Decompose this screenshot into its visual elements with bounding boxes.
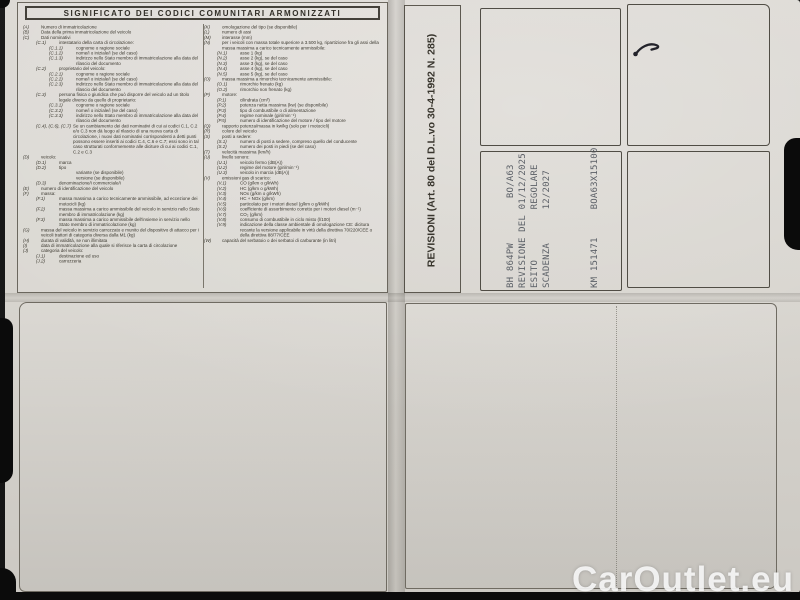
blank-page-left <box>19 302 387 592</box>
legend-entry-code: (C.4), (C.6), (C.7) <box>36 123 73 128</box>
legend-entry-code: (J.2) <box>36 259 59 264</box>
legend-entry-code: (C.3.3) <box>49 113 76 118</box>
legend-entry-text: carrozzeria <box>59 259 201 264</box>
legend-left-column: (A) Numero di immatricolazione (B) Data … <box>22 24 203 289</box>
legend-entry-text: Se un cambiamento dei dati nominativi di… <box>73 123 201 154</box>
legend-entry-code: (C.2.3) <box>49 82 76 87</box>
revision-stamp: BH 864PW BO/A63 REVISIONE DEL 01/12/2025… <box>505 156 601 288</box>
legend-entry-text: per i veicoli con massa totale superiore… <box>222 40 382 50</box>
legend-entry: (W) capacità del serbatoio o dei serbato… <box>204 238 382 243</box>
legend-entry-code: (V.9) <box>217 222 240 227</box>
legend-entry-code: (F.1) <box>36 196 59 201</box>
background-edge-right <box>784 138 800 250</box>
legend-title: SIGNIFICATO DEI CODICI COMUNITARI ARMONI… <box>25 6 380 20</box>
codes-legend-panel: SIGNIFICATO DEI CODICI COMUNITARI ARMONI… <box>17 2 388 293</box>
legend-entry-code: (W) <box>204 238 222 243</box>
legend-right-column: (K) omologazione del tipo (se disponibil… <box>203 24 384 289</box>
legend-entry-text: indirizzo nello Stato membro di immatric… <box>76 56 201 66</box>
legend-entry-text: capacità del serbatoio o dei serbatoi di… <box>222 238 382 243</box>
document-photo: SIGNIFICATO DEI CODICI COMUNITARI ARMONI… <box>0 0 800 600</box>
horizontal-fold-shadow <box>5 293 800 302</box>
legend-entry-code: (F.3) <box>36 217 59 222</box>
pen-mark-icon <box>632 37 666 61</box>
legend-entry-text: indirizzo nello Stato membro di immatric… <box>76 113 201 123</box>
legend-entry-code: (C.3) <box>36 92 59 97</box>
legend-entry-text: massa massima a carico ammissibile dell'… <box>59 217 201 227</box>
legend-entry-text: indicazione della classe ambientale di o… <box>240 222 382 238</box>
legend-entry-code: (D.2) <box>36 165 59 170</box>
legend-entry: (F.2) massa massima a carico ammissibile… <box>23 207 201 217</box>
legend-entry-code: (N) <box>204 40 222 45</box>
document-sheet: SIGNIFICATO DEI CODICI COMUNITARI ARMONI… <box>5 0 800 593</box>
legend-entry: (C.1.3) indirizzo nello Stato membro di … <box>23 56 201 66</box>
legend-entry: (V.9) indicazione della classe ambiental… <box>204 222 382 238</box>
legend-entry-text: persona fisica o giuridica che può dispo… <box>59 92 201 102</box>
revisioni-title-box: REVISIONI (Art. 80 del D.L.vo 30-4-1992 … <box>404 5 461 293</box>
background-edge-left <box>0 318 13 483</box>
legend-entry-code: (G) <box>23 227 41 232</box>
revision-cell-1 <box>480 8 621 146</box>
legend-entry: (C.4), (C.6), (C.7) Se un cambiamento de… <box>23 123 201 154</box>
revisioni-title: REVISIONI (Art. 80 del D.L.vo 30-4-1992 … <box>426 11 441 291</box>
legend-entry-text: indirizzo nello Stato membro di immatric… <box>76 82 201 92</box>
fold-crease <box>616 306 617 586</box>
legend-entry-text: massa massima a carico tecnicamente ammi… <box>59 196 201 206</box>
revision-cell-2 <box>627 4 770 146</box>
legend-entry: (F.1) massa massima a carico tecnicament… <box>23 196 201 206</box>
legend-entry-code: (C.1.3) <box>49 56 76 61</box>
legend-entry: (F.3) massa massima a carico ammissibile… <box>23 217 201 227</box>
legend-entry: (N) per i veicoli con massa totale super… <box>204 40 382 50</box>
column-divider <box>203 24 204 288</box>
legend-entry: (J.2) carrozzeria <box>23 259 201 264</box>
legend-entry: (C.2.3) indirizzo nello Stato membro di … <box>23 82 201 92</box>
legend-entry-text: massa del veicolo in servizio carrozzato… <box>41 227 201 237</box>
blank-page-right <box>405 303 777 589</box>
revision-cell-3: BH 864PW BO/A63 REVISIONE DEL 01/12/2025… <box>480 151 622 291</box>
legend-entry: (C.3) persona fisica o giuridica che può… <box>23 92 201 102</box>
legend-entry-text: massa massima a carico ammissibile del v… <box>59 207 201 217</box>
legend-entry: (C.3.3) indirizzo nello Stato membro di … <box>23 113 201 123</box>
legend-entry: (G) massa del veicolo in servizio carroz… <box>23 227 201 237</box>
legend-entry-code: (F.2) <box>36 207 59 212</box>
watermark: CarOutlet.eu <box>572 560 794 600</box>
revision-cell-4 <box>627 151 770 288</box>
